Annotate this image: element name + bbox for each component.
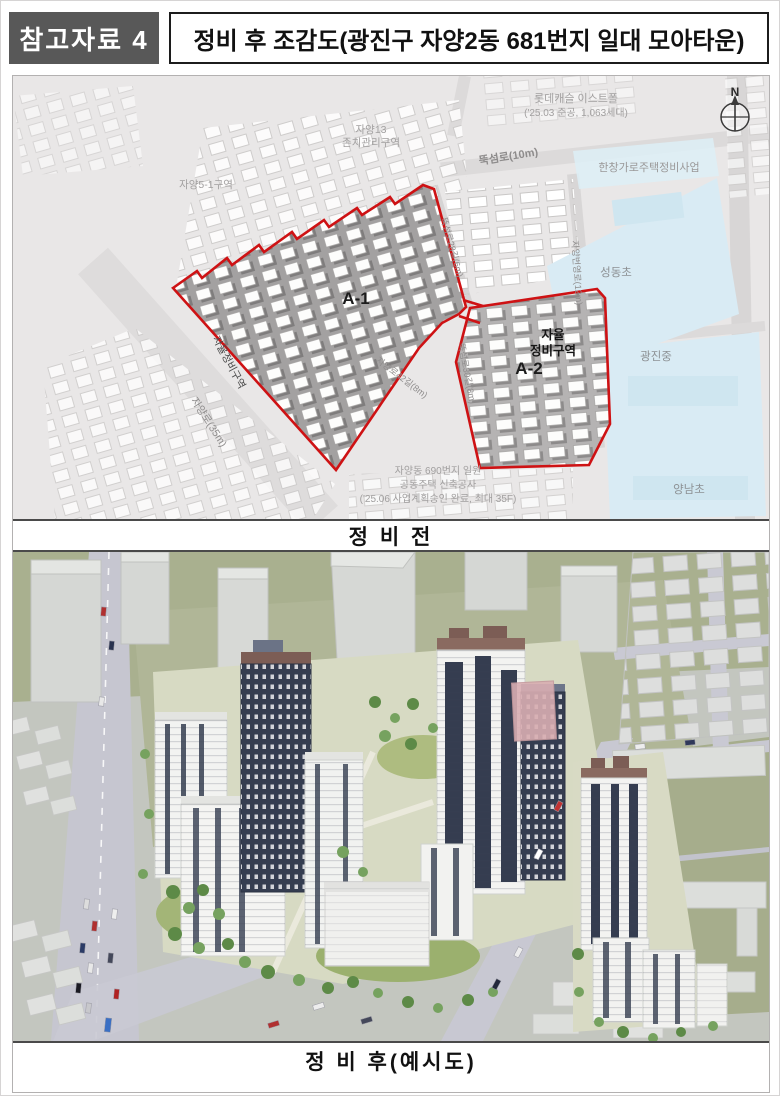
after-render-section bbox=[13, 552, 769, 1041]
caption-before: 정 비 전 bbox=[13, 519, 769, 552]
label-zone-a1: A-1 bbox=[342, 289, 369, 308]
label-jayang5-1: 자양5-1구역 bbox=[179, 179, 233, 191]
label-yangnam: 양남초 bbox=[673, 483, 705, 496]
label-lotte-2: ('25.03 준공, 1,063세대) bbox=[524, 107, 628, 119]
after-render-svg bbox=[13, 552, 769, 1041]
page-title: 정비 후 조감도(광진구 자양2동 681번지 일대 모아타운) bbox=[169, 12, 769, 64]
label-seongdong: 성동초 bbox=[600, 266, 632, 279]
label-jayul-2: 정비구역 bbox=[530, 343, 576, 358]
document-page: 참고자료 4 정비 후 조감도(광진구 자양2동 681번지 일대 모아타운) bbox=[0, 0, 780, 1096]
label-note-3: ('25.06 사업계획승인 완료, 최대 35F) bbox=[360, 492, 517, 505]
caption-after-text: 정 비 후(예시도) bbox=[305, 1046, 477, 1076]
zone-a2-area bbox=[456, 289, 610, 468]
label-jayang13-1: 자양13 bbox=[356, 124, 387, 136]
caption-before-text: 정 비 전 bbox=[349, 521, 434, 551]
label-jayang13-2: 존치관리구역 bbox=[342, 137, 400, 149]
reference-badge: 참고자료 4 bbox=[9, 12, 159, 64]
label-lotte-1: 롯데캐슬 이스트폴 bbox=[534, 92, 618, 105]
label-jayul-1: 자율 bbox=[541, 327, 565, 342]
figure-frame: 롯데캐슬 이스트폴 ('25.03 준공, 1,063세대) 자양13 존치관리… bbox=[12, 75, 770, 1093]
label-note-1: 자양동 690번지 일원 bbox=[395, 465, 482, 477]
header: 참고자료 4 정비 후 조감도(광진구 자양2동 681번지 일대 모아타운) bbox=[9, 12, 769, 64]
label-gwangjin: 광진중 bbox=[640, 350, 672, 363]
before-map-svg: 롯데캐슬 이스트폴 ('25.03 준공, 1,063세대) 자양13 존치관리… bbox=[13, 76, 769, 519]
caption-after: 정 비 후(예시도) bbox=[13, 1041, 769, 1078]
label-zone-a2: A-2 bbox=[515, 359, 542, 378]
label-hanchang: 한창가로주택정비사업 bbox=[598, 161, 699, 174]
label-note-2: 공동주택 신축공사 bbox=[400, 479, 476, 491]
before-map-section: 롯데캐슬 이스트폴 ('25.03 준공, 1,063세대) 자양13 존치관리… bbox=[13, 76, 769, 519]
